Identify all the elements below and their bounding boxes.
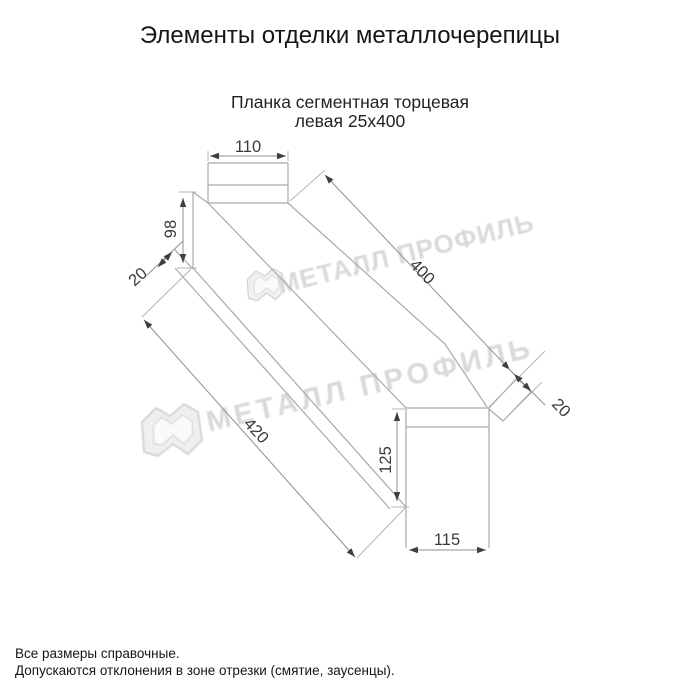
technical-drawing: МЕТАЛЛ ПРОФИЛЬ МЕТАЛЛ ПРОФИЛЬ [0, 0, 700, 700]
dimension-left-fold: 20 [125, 241, 183, 290]
dimension-head-width: 110 [208, 138, 288, 161]
dim-label-20-end: 20 [548, 395, 574, 421]
dimension-end-fold: 20 [503, 368, 574, 421]
watermark-logo-lower [142, 404, 202, 456]
footer-notes: Все размеры справочные. Допускаются откл… [15, 645, 395, 679]
footer-note-2: Допускаются отклонения в зоне отрезки (с… [15, 662, 395, 679]
footer-note-1: Все размеры справочные. [15, 645, 395, 662]
watermark-text-upper: МЕТАЛЛ ПРОФИЛЬ [274, 207, 537, 300]
watermark-upper: МЕТАЛЛ ПРОФИЛЬ [274, 207, 537, 300]
dimension-end-width: 115 [409, 531, 486, 550]
dim-label-98: 98 [162, 220, 180, 238]
dim-label-110: 110 [235, 138, 261, 156]
dim-label-125: 125 [377, 446, 395, 474]
dim-label-20-left: 20 [125, 264, 151, 290]
dim-label-115: 115 [434, 531, 460, 549]
